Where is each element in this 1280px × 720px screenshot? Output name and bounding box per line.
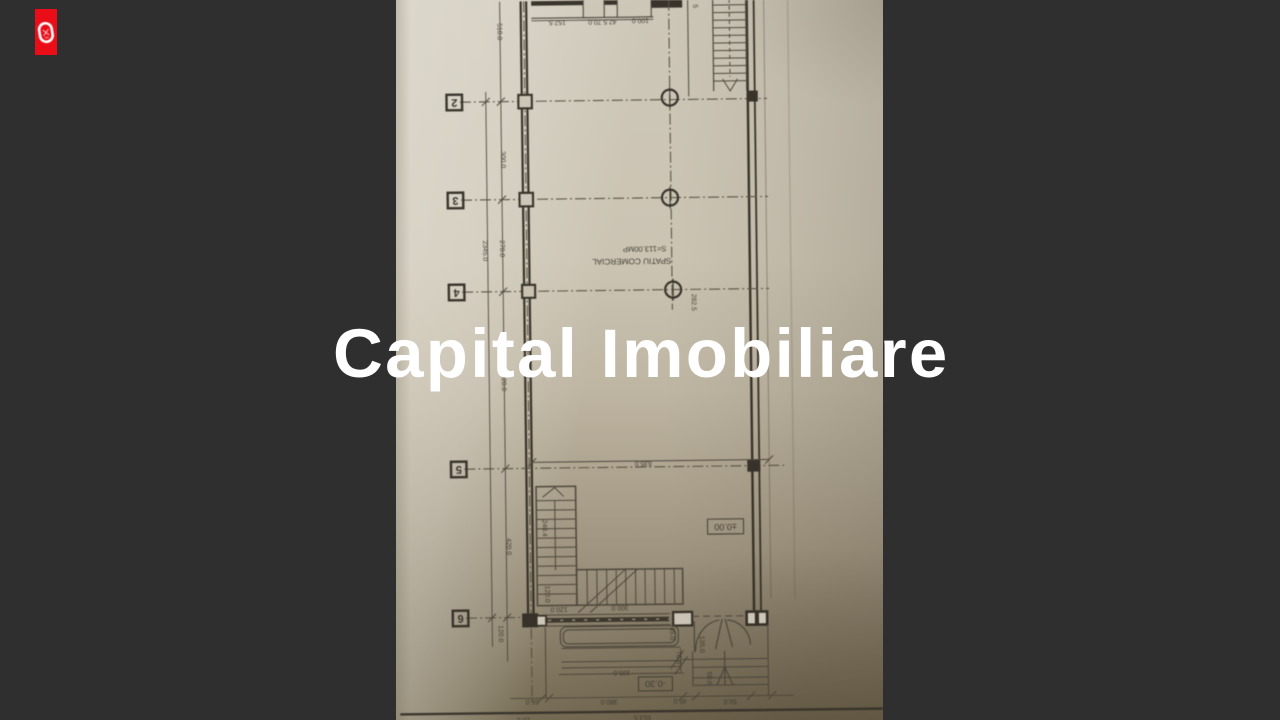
svg-text:2345.0: 2345.0: [481, 240, 488, 261]
svg-text:3: 3: [452, 194, 458, 206]
svg-text:45.0: 45.0: [673, 697, 687, 704]
svg-text:45.0: 45.0: [668, 627, 675, 641]
svg-text:SPATIU COMERCIAL: SPATIU COMERCIAL: [592, 256, 672, 266]
svg-text:S=113.00MP: S=113.00MP: [623, 244, 667, 254]
svg-text:5: 5: [456, 463, 462, 475]
svg-text:120.0: 120.0: [497, 625, 504, 642]
svg-text:300.0: 300.0: [499, 151, 506, 168]
svg-text:120.0: 120.0: [543, 586, 550, 603]
svg-text:300.0: 300.0: [611, 604, 628, 611]
svg-text:152.5: 152.5: [549, 18, 566, 25]
svg-text:380.0: 380.0: [600, 698, 617, 705]
svg-text:120.0: 120.0: [550, 605, 567, 612]
svg-text:50.0: 50.0: [705, 672, 712, 686]
svg-text:±0.00: ±0.00: [714, 522, 737, 532]
svg-text:270.0: 270.0: [498, 240, 505, 257]
svg-text:240.4: 240.4: [540, 520, 547, 537]
svg-text:335.0: 335.0: [613, 669, 630, 676]
svg-text:70.0: 70.0: [675, 651, 682, 665]
svg-text:135.0: 135.0: [698, 636, 705, 653]
svg-text:5: 5: [691, 4, 698, 8]
svg-text:20.0: 20.0: [517, 716, 531, 720]
svg-text:50.0: 50.0: [723, 697, 737, 704]
svg-text:653.5: 653.5: [634, 713, 651, 720]
svg-text:282.5: 282.5: [690, 294, 697, 311]
svg-text:6: 6: [458, 612, 464, 624]
svg-text:42.5 70.0: 42.5 70.0: [588, 18, 617, 25]
svg-text:55.0: 55.0: [525, 698, 539, 705]
svg-text:100.0: 100.0: [632, 16, 649, 23]
svg-text:510.0: 510.0: [495, 23, 502, 40]
svg-text:635.0: 635.0: [634, 459, 651, 466]
svg-text:4: 4: [453, 286, 460, 298]
svg-text:420.0: 420.0: [505, 538, 512, 555]
svg-text:2: 2: [451, 96, 457, 108]
svg-text:-0.30: -0.30: [645, 679, 666, 689]
